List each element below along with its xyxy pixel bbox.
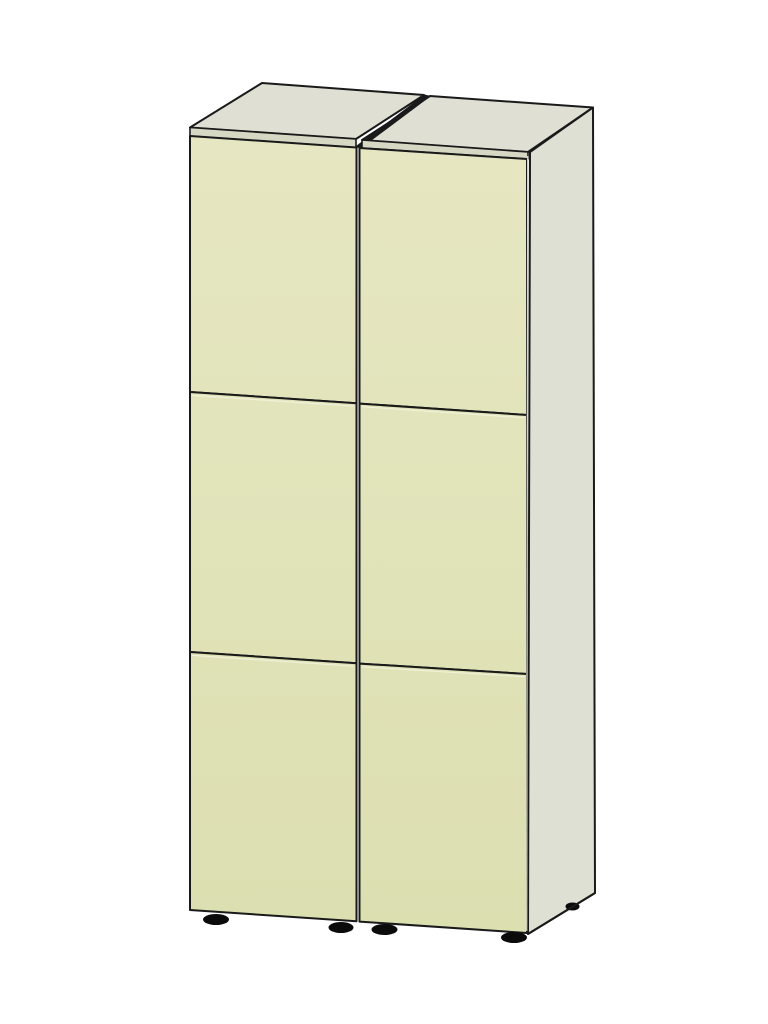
render-canvas [0,0,768,1024]
left-door-upper-panel [190,136,357,403]
right-door-lower-panel [360,664,528,933]
foot-center-left [329,922,354,933]
right-door-upper-panel [360,148,528,415]
foot-front-left [203,914,229,925]
foot-center-right [372,924,398,935]
left-door-lower-panel [190,652,357,921]
cabinet-side-panel [528,108,595,935]
foot-front-right [501,932,527,943]
left-door-middle-panel [190,392,357,663]
cabinet-render [0,0,768,1024]
right-door-middle-panel [360,404,528,674]
